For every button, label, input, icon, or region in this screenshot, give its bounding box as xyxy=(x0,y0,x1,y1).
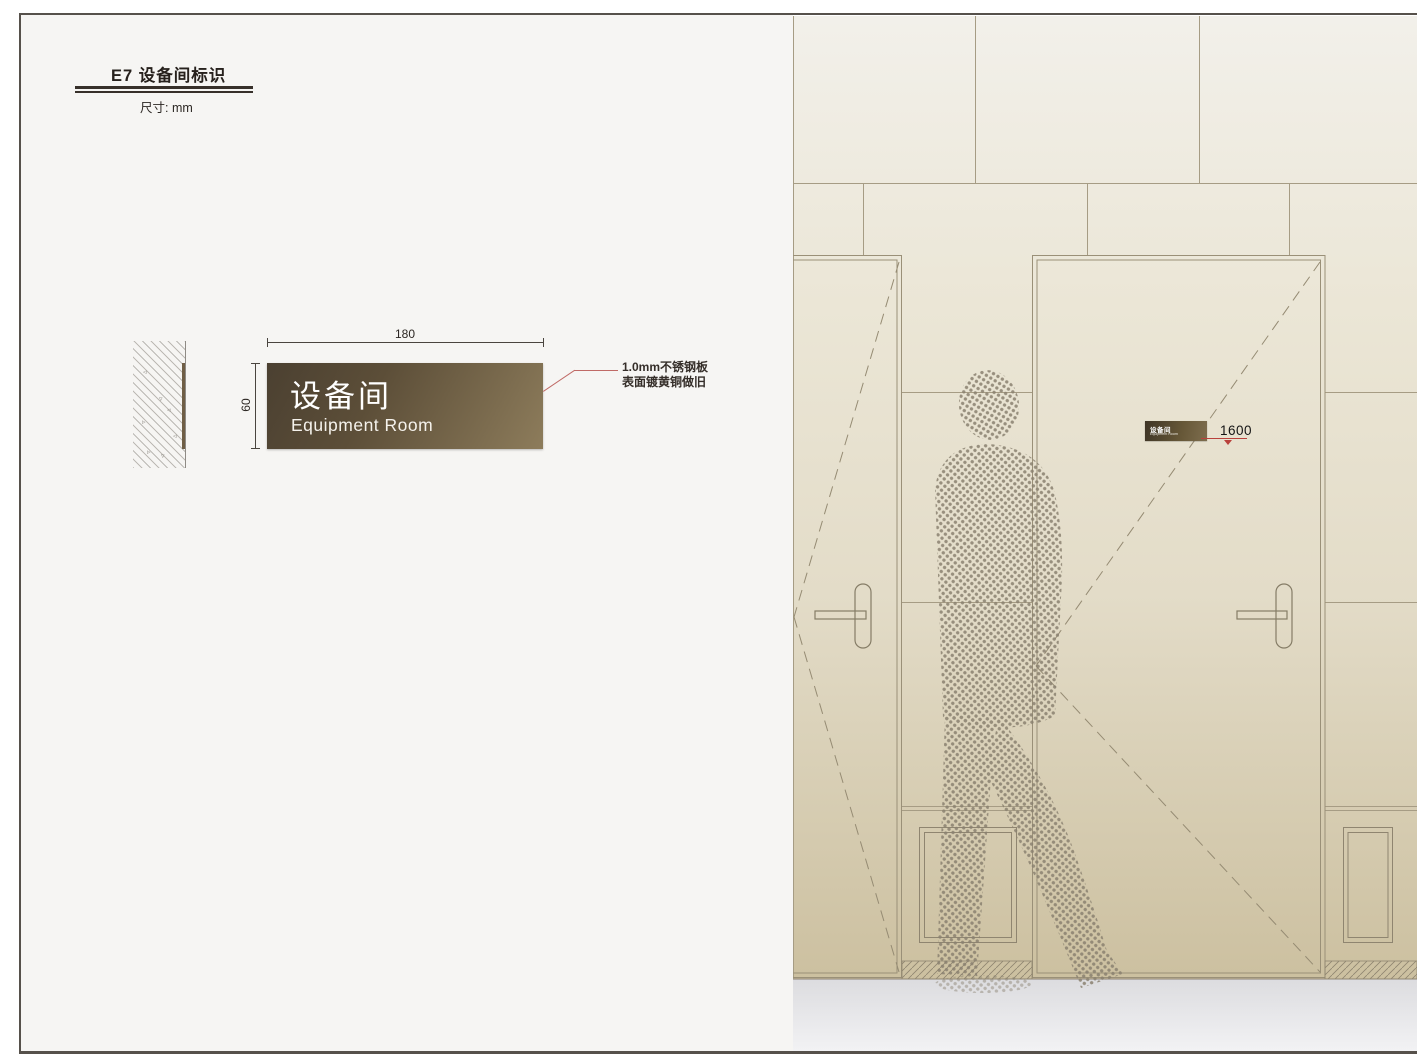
dimension-tick xyxy=(251,448,260,449)
level-marker-triangle xyxy=(1224,440,1232,445)
page-border-top xyxy=(19,13,1417,15)
signage-spec-page: E7 设备间标识 尺寸: mm ◃ ▿ ◃ ▹ ◃ ▹ ▿ 180 60 设备间… xyxy=(0,0,1417,1063)
page-title: E7 设备间标识 xyxy=(111,62,226,86)
unit-label: 尺寸: mm xyxy=(140,97,193,116)
aggregate-symbol: ◃ xyxy=(173,433,177,440)
left-page-background xyxy=(21,15,793,1051)
page-border-bottom xyxy=(19,1051,1417,1054)
dimension-tick xyxy=(251,363,260,364)
material-note: 1.0mm不锈钢板 表面镀黄铜做旧 xyxy=(622,360,708,390)
door-elevation-rendering xyxy=(793,16,1417,1051)
wall-face-line xyxy=(185,341,186,468)
mounted-door-sign: 设备间 Equipment Room xyxy=(1145,421,1207,441)
page-border-left xyxy=(19,13,21,1053)
dimension-tick xyxy=(267,338,268,347)
wall-section-hatch: ◃ ▿ ◃ ▹ ◃ ▹ ▿ xyxy=(133,341,186,468)
wall-surface xyxy=(793,16,1417,979)
aggregate-symbol: ▿ xyxy=(161,453,165,460)
aggregate-symbol: ▿ xyxy=(159,396,163,403)
material-note-line1: 1.0mm不锈钢板 xyxy=(622,360,708,375)
material-note-line2: 表面镀黄铜做旧 xyxy=(622,375,708,390)
mounted-sign-english-text: Equipment Room xyxy=(1150,432,1178,436)
dimension-tick xyxy=(543,338,544,347)
aggregate-symbol: ▹ xyxy=(142,419,146,426)
sign-panel-artwork: 设备间 Equipment Room xyxy=(267,363,543,449)
aggregate-symbol: ◃ xyxy=(143,369,147,376)
mounting-height-value: 1600 xyxy=(1220,423,1252,438)
dimension-height-value: 60 xyxy=(239,391,253,419)
dimension-line-height xyxy=(255,363,256,449)
dimension-line-width xyxy=(267,342,543,343)
aggregate-symbol: ◃ xyxy=(167,407,171,414)
elevation-drawing xyxy=(793,16,1417,1051)
title-underline-thin xyxy=(75,91,253,93)
aggregate-symbol: ▹ xyxy=(147,449,151,456)
leader-line-horizontal xyxy=(574,370,618,371)
title-underline-thick xyxy=(75,86,253,89)
floor xyxy=(793,979,1417,1051)
dimension-width-value: 180 xyxy=(378,327,432,341)
sign-plate-section xyxy=(182,363,185,449)
sign-panel-chinese-text: 设备间 xyxy=(290,371,392,416)
sign-panel-english-text: Equipment Room xyxy=(291,415,433,436)
